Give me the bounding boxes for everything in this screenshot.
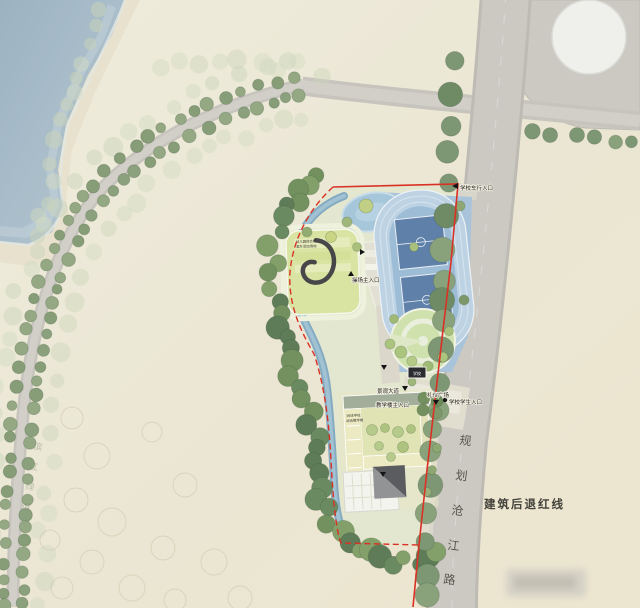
tree-icon	[97, 195, 109, 207]
tree-icon	[186, 84, 201, 99]
tree-icon	[275, 225, 289, 239]
tree-icon	[29, 293, 40, 304]
tree-icon	[609, 135, 623, 149]
tree-icon	[60, 98, 74, 112]
tree-icon	[167, 100, 181, 114]
ceremony-plaza-label: 礼仪广场	[427, 391, 450, 399]
tree-icon	[25, 310, 37, 322]
tree-icon	[52, 284, 62, 294]
tree-icon	[70, 202, 81, 213]
tree-icon	[67, 173, 83, 189]
track-entrance-label: 操场主入口	[352, 276, 380, 284]
tree-icon	[62, 253, 76, 267]
tree-icon	[407, 356, 417, 366]
tree-icon	[625, 136, 637, 148]
tree-icon	[253, 53, 272, 72]
tree-icon	[156, 123, 166, 133]
tree-icon	[381, 424, 390, 433]
teaching-entrance-label: 教学楼主入口	[376, 401, 409, 409]
tree-icon	[118, 173, 130, 185]
tree-icon	[441, 116, 461, 136]
tree-icon	[91, 2, 106, 17]
tree-icon	[175, 114, 186, 125]
tree-icon	[42, 425, 59, 442]
setback-line-label: 建筑后退红线	[484, 497, 565, 511]
tree-icon	[436, 140, 459, 163]
right-road-name-char: 江	[447, 538, 461, 553]
tree-icon	[0, 499, 11, 510]
tree-icon	[393, 427, 404, 438]
tree-icon	[235, 87, 245, 97]
tree-icon	[31, 208, 47, 224]
left-road-name-char: 江	[28, 461, 39, 473]
tree-icon	[55, 272, 66, 283]
kindergarten-label: 幼儿园综合楼	[296, 238, 317, 244]
tree-icon	[41, 197, 55, 211]
tree-icon	[280, 92, 290, 102]
tree-icon	[5, 283, 21, 299]
tree-icon	[0, 558, 9, 570]
tree-icon	[274, 110, 293, 129]
school-label: 36班学校	[346, 412, 361, 418]
tree-icon	[152, 59, 170, 77]
tree-icon	[25, 423, 39, 437]
tree-icon	[16, 597, 28, 608]
tree-icon	[97, 164, 110, 177]
tree-icon	[3, 465, 16, 478]
tree-icon	[46, 454, 62, 470]
tree-icon	[37, 344, 49, 356]
tree-icon	[189, 105, 200, 116]
tree-icon	[259, 263, 277, 281]
tree-icon	[65, 292, 85, 312]
tree-icon	[59, 315, 77, 333]
landscape-avenue-label: 景观大道	[377, 387, 400, 395]
tree-icon	[367, 425, 378, 436]
tree-icon	[41, 259, 53, 271]
tree-icon	[20, 322, 33, 335]
tree-icon	[153, 146, 165, 158]
tree-icon	[3, 417, 17, 431]
tree-icon	[375, 442, 384, 451]
tree-icon	[4, 431, 15, 442]
tree-icon	[272, 77, 284, 89]
tree-icon	[407, 425, 416, 434]
tree-icon	[396, 551, 410, 565]
tree-icon	[38, 545, 56, 563]
tree-icon	[202, 121, 216, 135]
tree-icon	[385, 339, 395, 349]
tree-icon	[257, 235, 279, 257]
tree-icon	[168, 142, 179, 153]
tree-icon	[238, 131, 254, 147]
tree-icon	[525, 124, 541, 140]
tree-icon	[30, 244, 45, 259]
tree-icon	[1, 485, 13, 497]
tree-icon	[289, 53, 305, 69]
tree-icon	[84, 38, 96, 50]
tree-icon	[16, 566, 28, 578]
tree-icon	[51, 342, 71, 362]
tree-icon	[262, 281, 277, 296]
tree-icon	[117, 206, 133, 222]
tree-icon	[77, 190, 89, 202]
tree-icon	[428, 466, 437, 475]
watermark	[506, 569, 586, 597]
tree-icon	[294, 113, 308, 127]
tree-icon	[408, 378, 416, 386]
tree-icon	[288, 72, 300, 84]
tree-icon	[89, 19, 103, 33]
tree-icon	[79, 224, 90, 235]
tree-icon	[30, 228, 46, 244]
tree-icon	[131, 140, 144, 153]
right-road-name-char: 沧	[451, 502, 465, 518]
tree-icon	[54, 230, 64, 240]
tree-icon	[182, 129, 196, 143]
watermark-inner	[514, 576, 576, 589]
school-gate-sign: 学校	[408, 367, 426, 378]
tree-icon	[433, 444, 442, 453]
tree-icon	[73, 235, 85, 247]
tree-icon	[387, 453, 396, 462]
tree-icon	[114, 153, 125, 164]
tree-icon	[205, 76, 219, 90]
tree-icon	[0, 575, 9, 585]
right-road-name-char: 路	[443, 571, 457, 587]
tree-icon	[292, 89, 305, 102]
tree-icon	[398, 442, 409, 453]
tree-icon	[7, 401, 17, 411]
tree-icon	[3, 307, 22, 326]
tree-icon	[390, 315, 399, 324]
tree-icon	[430, 373, 450, 393]
tree-icon	[73, 56, 88, 71]
tree-icon	[63, 215, 74, 226]
tree-icon	[12, 361, 25, 374]
tree-icon	[29, 388, 43, 402]
roundabout-circle	[552, 0, 626, 74]
vehicle-entrance-label: 学校车行入口	[460, 184, 493, 192]
tree-icon	[43, 397, 59, 413]
tree-icon	[415, 503, 436, 524]
tree-icon	[15, 342, 28, 355]
tree-icon	[438, 82, 463, 107]
site-plan-canvas: 幼儿园综合楼 室外活动场地 36班学校 综合教学楼	[0, 0, 640, 608]
tree-icon	[250, 102, 264, 116]
tree-icon	[190, 55, 208, 73]
right-road-name-char: 划	[455, 468, 469, 483]
tree-icon	[274, 206, 295, 227]
tree-icon	[253, 79, 264, 90]
tree-icon	[35, 572, 54, 591]
tree-icon	[417, 404, 429, 416]
tree-icon	[72, 269, 89, 286]
tree-icon	[35, 362, 46, 373]
tree-icon	[269, 98, 279, 108]
tree-icon	[128, 165, 141, 178]
tree-icon	[45, 312, 57, 324]
tree-icon	[259, 118, 273, 132]
tree-icon	[220, 92, 233, 105]
tree-icon	[18, 534, 31, 547]
kindergarten-building: 幼儿园综合楼 室外活动场地	[281, 225, 364, 320]
tree-icon	[238, 107, 250, 119]
tree-icon	[395, 346, 407, 358]
tree-icon	[227, 50, 247, 70]
tree-icon	[430, 407, 442, 419]
tree-icon	[6, 453, 17, 464]
tree-icon	[53, 112, 68, 127]
tree-icon	[219, 112, 232, 125]
tree-icon	[27, 402, 40, 415]
tree-icon	[270, 63, 286, 79]
tree-icon	[543, 128, 558, 143]
tree-icon	[10, 380, 23, 393]
tree-icon	[137, 174, 155, 192]
tree-icon	[16, 547, 30, 561]
tree-icon	[0, 588, 9, 599]
tree-icon	[459, 295, 469, 305]
tree-icon	[359, 199, 373, 213]
student-entrance-label: 学校学生入口	[449, 398, 482, 406]
tree-icon	[587, 130, 601, 144]
tree-icon	[120, 123, 137, 140]
tree-icon	[313, 68, 331, 86]
tree-icon	[46, 296, 59, 309]
tree-icon	[42, 157, 56, 171]
tree-icon	[163, 161, 181, 179]
right-road-name-char: 规	[459, 432, 473, 448]
tree-icon	[0, 520, 9, 530]
tree-icon	[570, 128, 585, 143]
tree-icon	[446, 52, 465, 71]
tree-icon	[141, 129, 155, 143]
tree-icon	[2, 331, 17, 346]
tree-icon	[0, 537, 11, 548]
school-label: 综合教学楼	[346, 417, 364, 423]
tree-icon	[171, 52, 188, 69]
master-plan-drawing: 幼儿园综合楼 室外活动场地 36班学校 综合教学楼	[0, 0, 640, 608]
tree-icon	[108, 186, 119, 197]
tree-icon	[302, 227, 312, 237]
tree-icon	[440, 174, 458, 192]
gate-sign-text: 学校	[413, 370, 421, 376]
tree-icon	[36, 486, 51, 501]
tree-icon	[410, 243, 419, 252]
tree-icon	[85, 244, 102, 261]
tree-icon	[326, 232, 337, 243]
tree-icon	[45, 131, 63, 149]
tree-icon	[145, 157, 156, 168]
tree-icon	[19, 521, 31, 533]
tree-icon	[86, 210, 98, 222]
kindergarten-label: 室外活动场地	[296, 243, 317, 249]
tree-icon	[101, 221, 117, 237]
tree-icon	[46, 173, 62, 189]
tree-icon	[415, 583, 439, 607]
tree-icon	[86, 149, 102, 165]
tree-icon	[40, 505, 57, 522]
tree-icon	[31, 376, 42, 387]
tree-icon	[342, 217, 352, 227]
tree-icon	[49, 243, 60, 254]
tree-icon	[50, 374, 64, 388]
tree-icon	[29, 522, 46, 539]
tree-icon	[202, 139, 217, 154]
tree-icon	[70, 72, 83, 85]
tree-icon	[186, 148, 202, 164]
tree-icon	[200, 97, 214, 111]
tree-icon	[19, 585, 30, 596]
tree-icon	[445, 327, 454, 336]
tree-icon	[212, 54, 228, 70]
tree-icon	[216, 130, 231, 145]
tree-icon	[31, 275, 45, 289]
tree-icon	[42, 329, 52, 339]
tree-icon	[86, 180, 99, 193]
